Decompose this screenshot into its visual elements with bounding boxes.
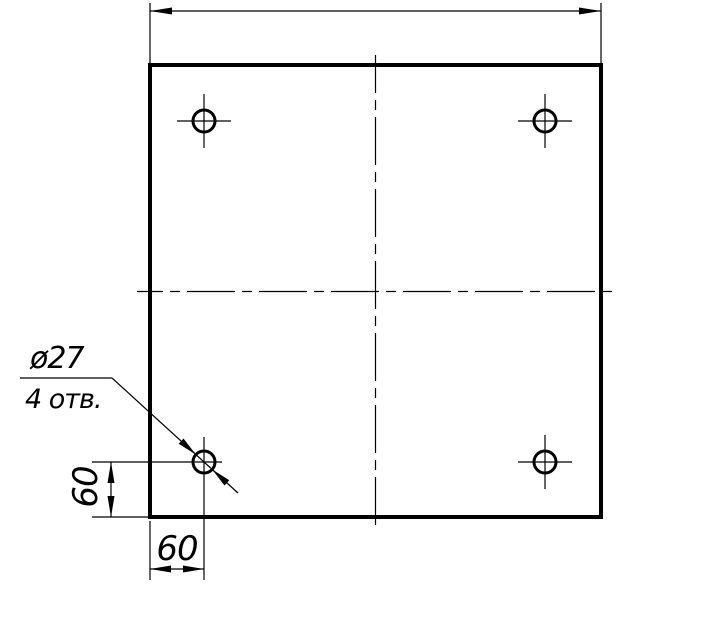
leader-arrow-upper <box>179 439 196 455</box>
hole-top-right <box>518 94 572 148</box>
top-dim-arrow-right <box>579 8 601 15</box>
plate-drawing: 60 60 ø27 4 отв. <box>0 0 713 631</box>
bottom-dim-value: 60 <box>156 529 197 569</box>
hole-top-left <box>177 94 231 148</box>
dimension-top-overall <box>150 3 601 63</box>
left-dim-arrow-down <box>108 496 115 517</box>
left-dim-value: 60 <box>66 466 106 507</box>
leader-arrow-lower <box>212 469 229 485</box>
left-dim-arrow-up <box>108 462 115 483</box>
drawing-canvas: 60 60 ø27 4 отв. <box>0 0 713 631</box>
dimension-left-60: 60 <box>66 462 148 517</box>
hole-diameter-leader: ø27 4 отв. <box>20 341 238 493</box>
top-dim-arrow-left <box>150 8 172 15</box>
dimension-bottom-60: 60 <box>150 521 204 580</box>
hole-diameter-label: ø27 <box>29 341 84 376</box>
hole-bottom-right <box>518 435 572 489</box>
hole-count-label: 4 отв. <box>25 384 102 415</box>
